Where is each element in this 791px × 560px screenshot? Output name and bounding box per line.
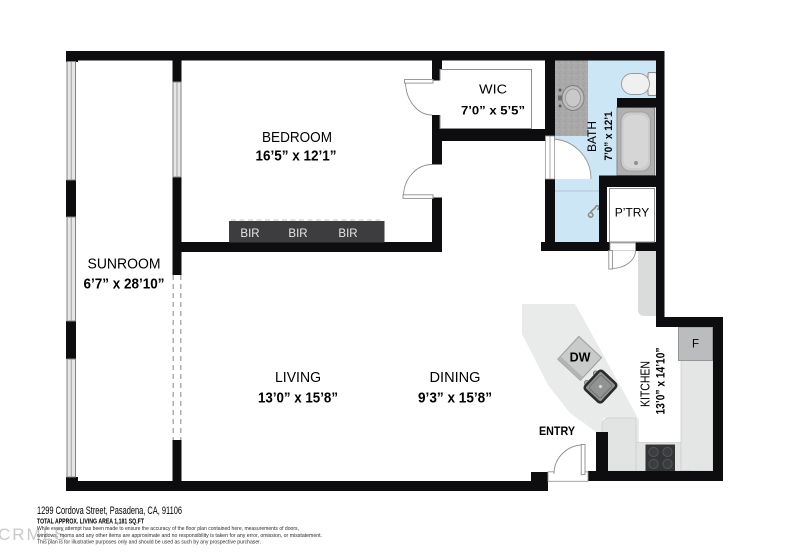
svg-text:1299 Cordova Street, Pasadena,: 1299 Cordova Street, Pasadena, CA, 91106 xyxy=(37,505,182,517)
svg-text:While every attempt has been m: While every attempt has been made to ens… xyxy=(37,526,299,532)
svg-text:DINING: DINING xyxy=(430,369,481,386)
svg-text:ENTRY: ENTRY xyxy=(539,426,575,438)
svg-text:BIR: BIR xyxy=(338,228,357,240)
svg-text:16’5” x 12’1”: 16’5” x 12’1” xyxy=(256,149,337,165)
svg-text:KITCHEN: KITCHEN xyxy=(639,361,653,407)
svg-text:BIR: BIR xyxy=(240,228,259,240)
svg-text:9’3” x 15’8”: 9’3” x 15’8” xyxy=(418,391,492,407)
svg-text:DW: DW xyxy=(570,351,591,365)
svg-text:BIR: BIR xyxy=(288,228,307,240)
svg-text:6’7” x 28’10”: 6’7” x 28’10” xyxy=(84,277,165,293)
svg-text:13’0” x 14’10”: 13’0” x 14’10” xyxy=(654,348,668,415)
svg-text:P’TRY: P’TRY xyxy=(615,206,649,220)
svg-text:SUNROOM: SUNROOM xyxy=(88,256,161,273)
svg-text:This plan is for illustrative: This plan is for illustrative purposes o… xyxy=(37,540,261,546)
svg-text:7’0” x 12’1: 7’0” x 12’1 xyxy=(603,112,615,161)
svg-text:BEDROOM: BEDROOM xyxy=(262,129,332,146)
svg-text:13’0” x 15’8”: 13’0” x 15’8” xyxy=(258,391,338,407)
svg-text:WIC: WIC xyxy=(479,83,507,97)
svg-text:BATH: BATH xyxy=(587,121,599,152)
svg-text:TOTAL APPROX. LIVING AREA 1,18: TOTAL APPROX. LIVING AREA 1,181 SQ.FT xyxy=(37,519,145,526)
svg-text:LIVING: LIVING xyxy=(275,369,321,386)
svg-text:windows, rooms and any other i: windows, rooms and any other items are a… xyxy=(36,533,322,539)
svg-text:7’0” x 5’5”: 7’0” x 5’5” xyxy=(461,104,525,118)
svg-text:F: F xyxy=(692,339,699,351)
